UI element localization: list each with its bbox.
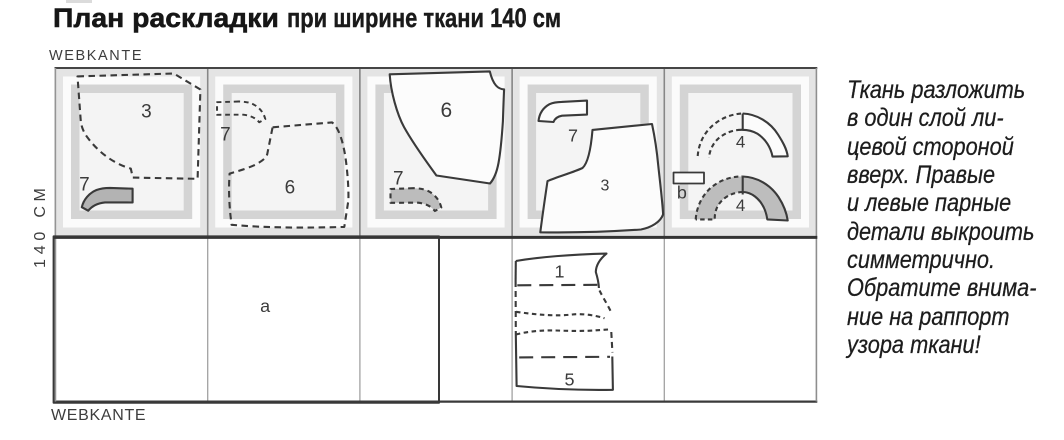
svg-text:4: 4 [736,196,745,215]
svg-text:4: 4 [736,133,745,152]
svg-text:7: 7 [568,126,578,146]
svg-text:3: 3 [141,102,152,123]
svg-text:7: 7 [79,175,90,196]
svg-text:3: 3 [600,178,609,195]
svg-text:5: 5 [564,369,574,389]
svg-text:7: 7 [393,169,404,190]
svg-text:b: b [677,183,687,203]
svg-text:6: 6 [441,99,453,122]
svg-text:6: 6 [285,178,296,199]
svg-text:7: 7 [220,125,231,146]
svg-text:a: a [260,296,270,316]
svg-text:1: 1 [554,261,564,281]
